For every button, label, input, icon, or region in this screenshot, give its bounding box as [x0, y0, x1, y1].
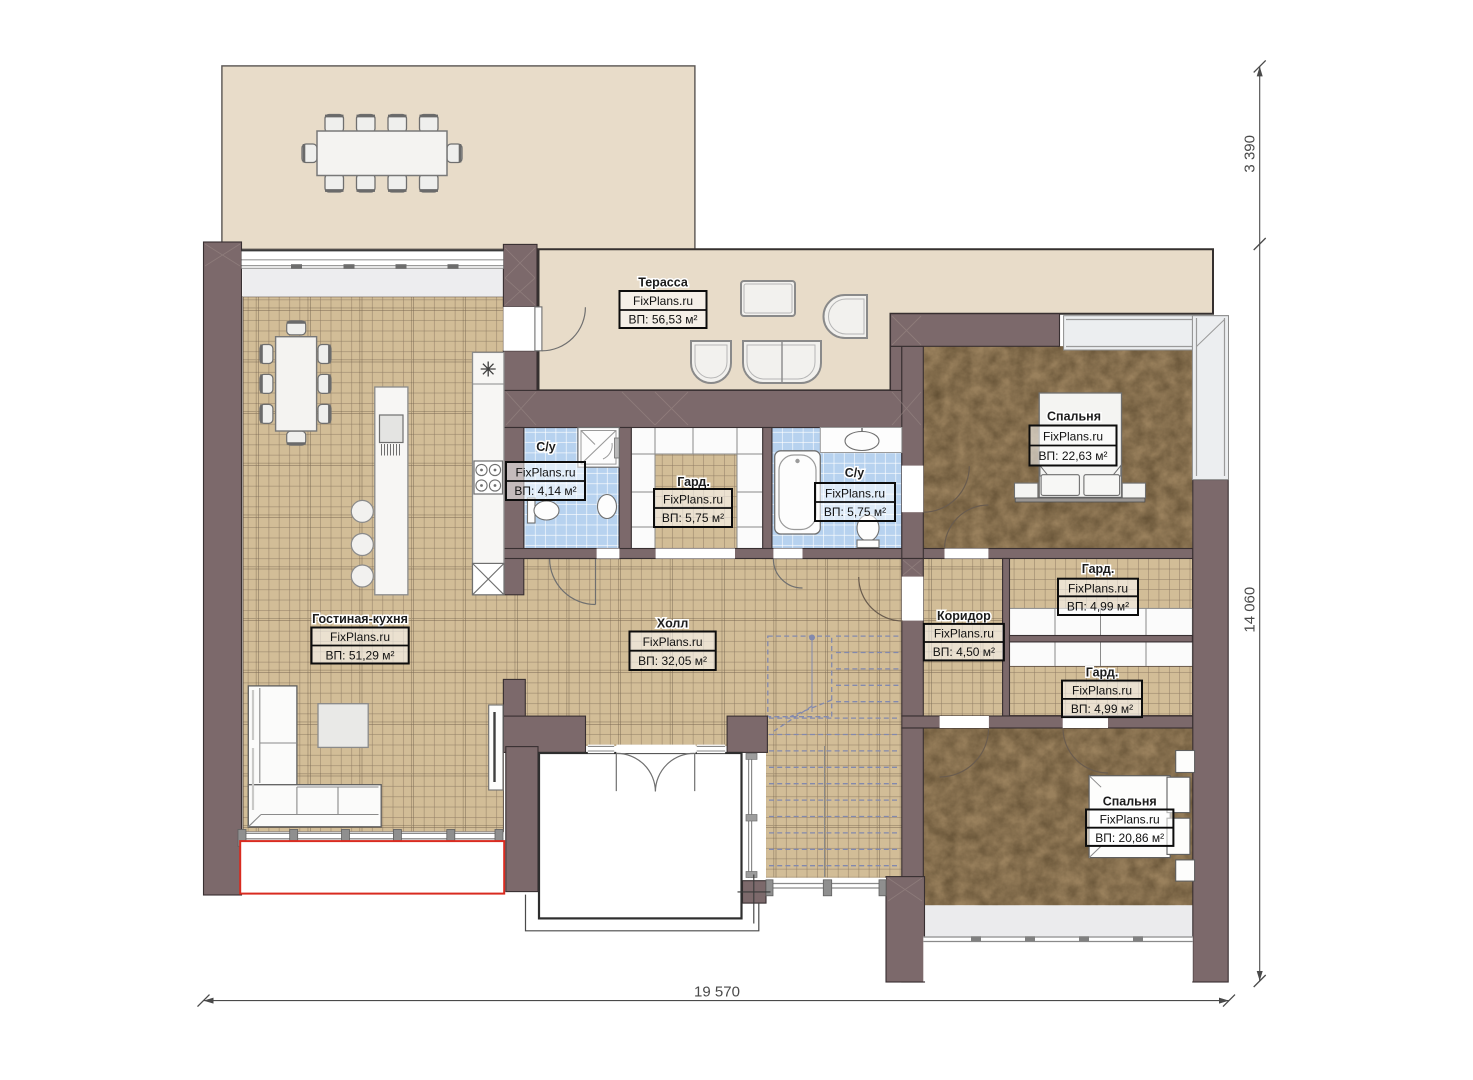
svg-text:ВП: 5,75 м²: ВП: 5,75 м² [662, 511, 724, 525]
svg-text:ВП: 32,05 м²: ВП: 32,05 м² [638, 654, 707, 668]
svg-text:FixPlans.ru: FixPlans.ru [1068, 581, 1128, 595]
svg-text:FixPlans.ru: FixPlans.ru [663, 493, 723, 507]
svg-text:FixPlans.ru: FixPlans.ru [1100, 813, 1160, 827]
svg-text:ВП: 56,53 м²: ВП: 56,53 м² [629, 313, 698, 327]
svg-text:ВП: 5,75 м²: ВП: 5,75 м² [824, 505, 886, 519]
svg-text:Гард.: Гард. [1086, 666, 1119, 680]
svg-text:FixPlans.ru: FixPlans.ru [825, 487, 885, 501]
svg-text:FixPlans.ru: FixPlans.ru [515, 466, 575, 480]
svg-text:ВП: 20,86 м²: ВП: 20,86 м² [1095, 831, 1164, 845]
svg-text:ВП: 4,99 м²: ВП: 4,99 м² [1067, 600, 1129, 614]
svg-text:FixPlans.ru: FixPlans.ru [643, 635, 703, 649]
svg-text:Гард.: Гард. [1082, 562, 1115, 576]
svg-text:Терасса: Терасса [638, 276, 689, 290]
svg-text:ВП: 4,99 м²: ВП: 4,99 м² [1071, 702, 1133, 716]
svg-text:Гард.: Гард. [677, 475, 710, 489]
svg-text:Спальня: Спальня [1103, 795, 1157, 809]
svg-text:19 570: 19 570 [694, 984, 740, 1001]
svg-text:ВП: 4,50 м²: ВП: 4,50 м² [933, 645, 995, 659]
svg-text:FixPlans.ru: FixPlans.ru [1043, 430, 1103, 444]
svg-text:FixPlans.ru: FixPlans.ru [330, 630, 390, 644]
svg-text:3 390: 3 390 [1242, 135, 1259, 173]
svg-text:Коридор: Коридор [937, 609, 991, 623]
svg-text:С/у: С/у [845, 466, 865, 480]
svg-text:FixPlans.ru: FixPlans.ru [633, 294, 693, 308]
svg-text:ВП: 22,63 м²: ВП: 22,63 м² [1039, 449, 1108, 463]
svg-text:Спальня: Спальня [1047, 410, 1101, 424]
svg-text:FixPlans.ru: FixPlans.ru [1072, 684, 1132, 698]
svg-text:Гостиная-кухня: Гостиная-кухня [312, 612, 408, 626]
svg-text:14 060: 14 060 [1242, 587, 1259, 633]
svg-text:Холл: Холл [657, 617, 688, 631]
svg-text:С/у: С/у [536, 440, 556, 454]
svg-text:FixPlans.ru: FixPlans.ru [934, 627, 994, 641]
svg-text:ВП: 51,29 м²: ВП: 51,29 м² [326, 649, 395, 663]
svg-text:ВП: 4,14 м²: ВП: 4,14 м² [514, 484, 576, 498]
